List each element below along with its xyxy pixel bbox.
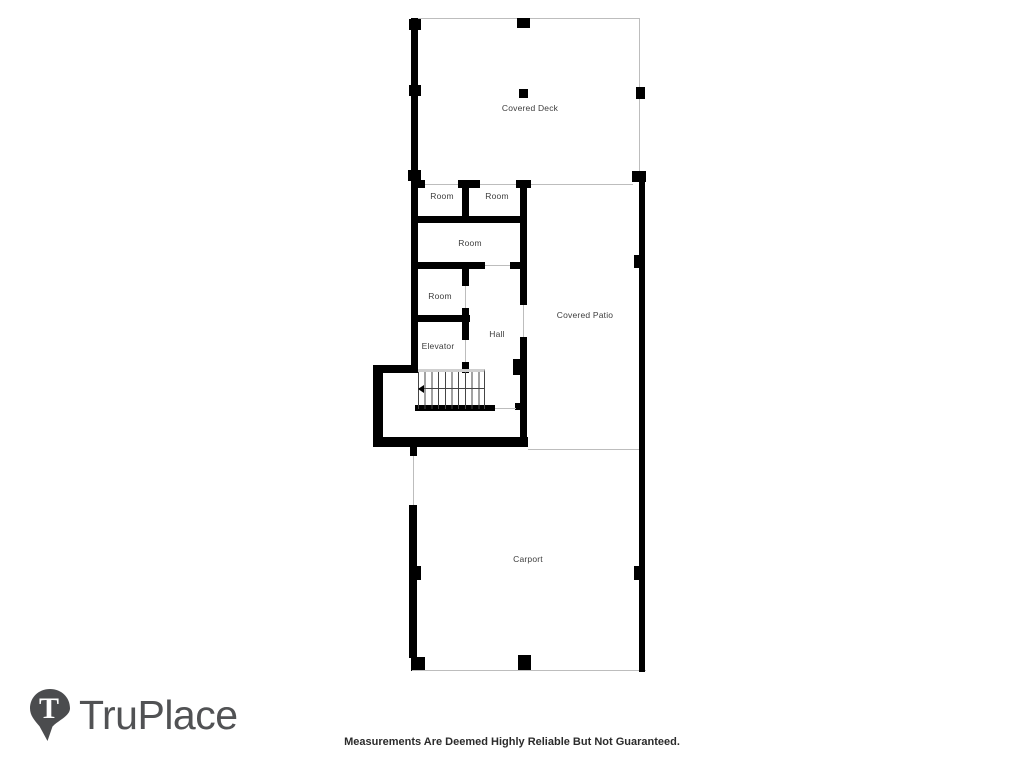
stairs-landing-line xyxy=(495,408,516,409)
wall-segment xyxy=(373,365,418,373)
room-label-covered-patio: Covered Patio xyxy=(557,310,613,320)
room-label-carport: Carport xyxy=(513,554,543,564)
wall-pillar xyxy=(410,447,417,456)
room-label-room-top-left: Room xyxy=(430,191,453,201)
wall-segment xyxy=(510,262,527,269)
wall-pillar xyxy=(409,85,421,96)
wall-pillar xyxy=(518,655,531,670)
door-line xyxy=(465,340,466,362)
carport-outline-bottom xyxy=(412,670,646,671)
wall-segment xyxy=(373,365,383,447)
wall-segment xyxy=(411,315,470,322)
wall-pillar xyxy=(634,566,645,580)
truplace-pin-icon: T xyxy=(28,688,72,742)
room-label-room-lower: Room xyxy=(428,291,451,301)
room-label-covered-deck: Covered Deck xyxy=(502,103,558,113)
room-label-room-top-right: Room xyxy=(485,191,508,201)
window-line xyxy=(480,184,516,185)
wall-segment xyxy=(462,322,469,340)
patio-outline-bottom xyxy=(528,449,640,450)
wall-segment xyxy=(411,262,485,269)
room-label-elevator: Elevator xyxy=(422,341,455,351)
window-line xyxy=(425,184,458,185)
wall-pillar xyxy=(636,87,645,99)
door-line xyxy=(485,265,510,266)
logo-monogram: T xyxy=(39,692,59,725)
wall-pillar xyxy=(411,657,425,671)
wall-segment xyxy=(373,437,528,447)
wall-pillar xyxy=(409,566,421,580)
window-line xyxy=(523,305,524,337)
wall-pillar xyxy=(409,19,421,30)
wall-pillar xyxy=(513,359,527,375)
wall-pillar xyxy=(634,255,645,268)
wall-segment xyxy=(411,216,527,223)
patio-outline-top xyxy=(531,184,633,185)
truplace-logo: T TruPlace xyxy=(28,688,238,742)
staircase xyxy=(418,369,485,409)
disclaimer-text: Measurements Are Deemed Highly Reliable … xyxy=(0,736,1024,748)
carport-outline-left xyxy=(413,456,414,505)
logo-text: TruPlace xyxy=(79,692,238,739)
stairs-run-line xyxy=(418,388,484,389)
wall-pillar xyxy=(517,18,530,28)
deck-post xyxy=(519,89,528,98)
door-line xyxy=(465,286,466,308)
wall-segment xyxy=(520,180,527,305)
wall-segment xyxy=(462,269,469,286)
floor-plan: Covered Deck Room Room Room Room Elevato… xyxy=(0,0,1024,768)
wall-segment xyxy=(409,505,417,658)
stairs-direction-arrow xyxy=(418,385,424,393)
room-label-room-middle: Room xyxy=(458,238,481,248)
wall-segment xyxy=(520,337,527,447)
wall-segment xyxy=(411,180,425,188)
room-label-hall: Hall xyxy=(489,329,504,339)
wall-segment xyxy=(639,172,645,672)
